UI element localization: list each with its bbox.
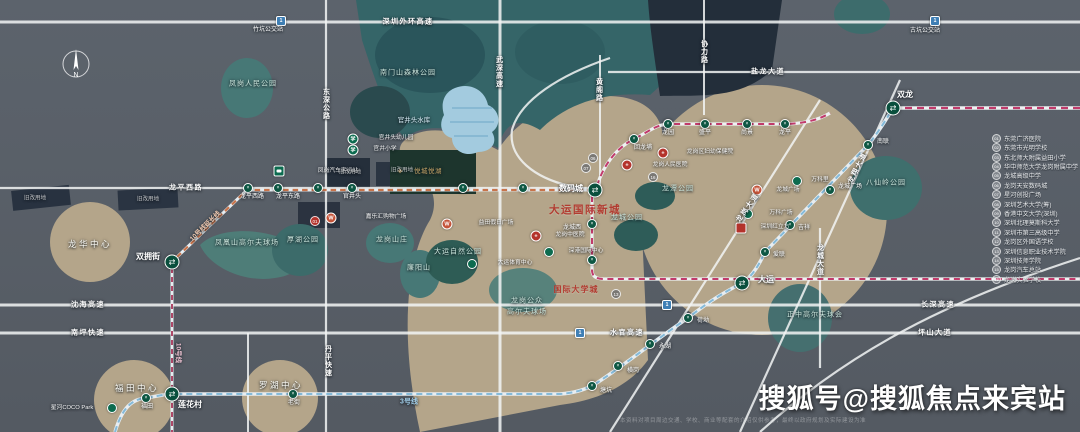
legend-item-label: 东北师大附属益田小学 <box>1004 153 1066 162</box>
legend-number-badge: 03 <box>992 153 1001 162</box>
legend-number-badge: 13 <box>992 247 1001 256</box>
legend-item: 05龙城高级中学 <box>992 173 1078 180</box>
legend-number-badge: 05 <box>992 171 1001 180</box>
legend-item-label: 龙岗天安数码城 <box>1004 181 1047 190</box>
legend-item-label: 龙岗汽车总站 <box>1004 265 1041 274</box>
legend-item: 14深圳技师学院 <box>992 257 1078 264</box>
legend-item: 11深圳市第三高级中学 <box>992 229 1078 236</box>
legend-number-badge: 10 <box>992 218 1001 227</box>
legend-item-label: 东莞广济医院 <box>1004 134 1041 143</box>
compass-needle-icon <box>74 49 79 70</box>
legend-item: 03东北师大附属益田小学 <box>992 154 1078 161</box>
legend-item-label: 龙城高级中学 <box>1004 171 1041 180</box>
legend-item-label: 华中师范大学龙岗附属中学 <box>1004 162 1078 171</box>
legend-item: 02东莞市光明学校 <box>992 144 1078 151</box>
watermark: 搜狐号@搜狐焦点来宾站 <box>759 377 1066 416</box>
compass: N <box>60 48 92 82</box>
legend-item: 13深圳信息职业技术学院 <box>992 248 1078 255</box>
legend-item-label: 星河创投广场 <box>1004 190 1041 199</box>
legend-item-label: 龙岗实验学校 <box>1004 275 1041 284</box>
legend-item: 15龙岗汽车总站 <box>992 266 1078 273</box>
map-canvas <box>0 0 1080 432</box>
legend-item: 04华中师范大学龙岗附属中学 <box>992 163 1078 170</box>
legend-item: 01东莞广济医院 <box>992 135 1078 142</box>
legend-item: 06龙岗天安数码城 <box>992 182 1078 189</box>
legend-number-badge: 01 <box>992 134 1001 143</box>
legend-item-label: 香港中文大学(深圳) <box>1004 209 1058 218</box>
legend-item: 10深圳北理莫斯科大学 <box>992 220 1078 227</box>
legend-item-label: 深圳艺术大学(筹) <box>1004 200 1051 209</box>
legend-item-label: 东莞市光明学校 <box>1004 143 1047 152</box>
legend-number-badge: 12 <box>992 237 1001 246</box>
legend-number-badge: 06 <box>992 181 1001 190</box>
legend-item-label: 龙岗区外国语学校 <box>1004 237 1054 246</box>
legend-item-label: 深圳信息职业技术学院 <box>1004 247 1066 256</box>
legend-item-label: 深圳市第三高级中学 <box>1004 228 1060 237</box>
legend-item: 12龙岗区外国语学校 <box>992 238 1078 245</box>
legend-number-badge: 14 <box>992 256 1001 265</box>
compass-north-letter: N <box>73 72 78 79</box>
legend-number-badge: 08 <box>992 200 1001 209</box>
disclaimer-text: 本资料对项目周边交通、学校、商业等配套的介绍仅供参考，最终以政府规划及实际建设为… <box>620 416 866 424</box>
legend-item-label: 深圳技师学院 <box>1004 256 1041 265</box>
poi-legend-list: 01东莞广济医院02东莞市光明学校03东北师大附属益田小学04华中师范大学龙岗附… <box>992 135 1078 283</box>
legend-item-label: 深圳北理莫斯科大学 <box>1004 218 1060 227</box>
legend-item: 16龙岗实验学校 <box>992 276 1078 283</box>
legend-number-badge: 07 <box>992 190 1001 199</box>
legend-number-badge: 09 <box>992 209 1001 218</box>
legend-number-badge: 16 <box>992 275 1001 284</box>
legend-number-badge: 02 <box>992 143 1001 152</box>
legend-number-badge: 11 <box>992 228 1001 237</box>
legend-number-badge: 04 <box>992 162 1001 171</box>
legend-item: 07星河创投广场 <box>992 191 1078 198</box>
legend-item: 08深圳艺术大学(筹) <box>992 201 1078 208</box>
location-map: ⇄⇄⇄⇄⇄××××××××××××××××××××××× 1111学学WWW++… <box>0 0 1080 432</box>
legend-number-badge: 15 <box>992 265 1001 274</box>
legend-item: 09香港中文大学(深圳) <box>992 210 1078 217</box>
